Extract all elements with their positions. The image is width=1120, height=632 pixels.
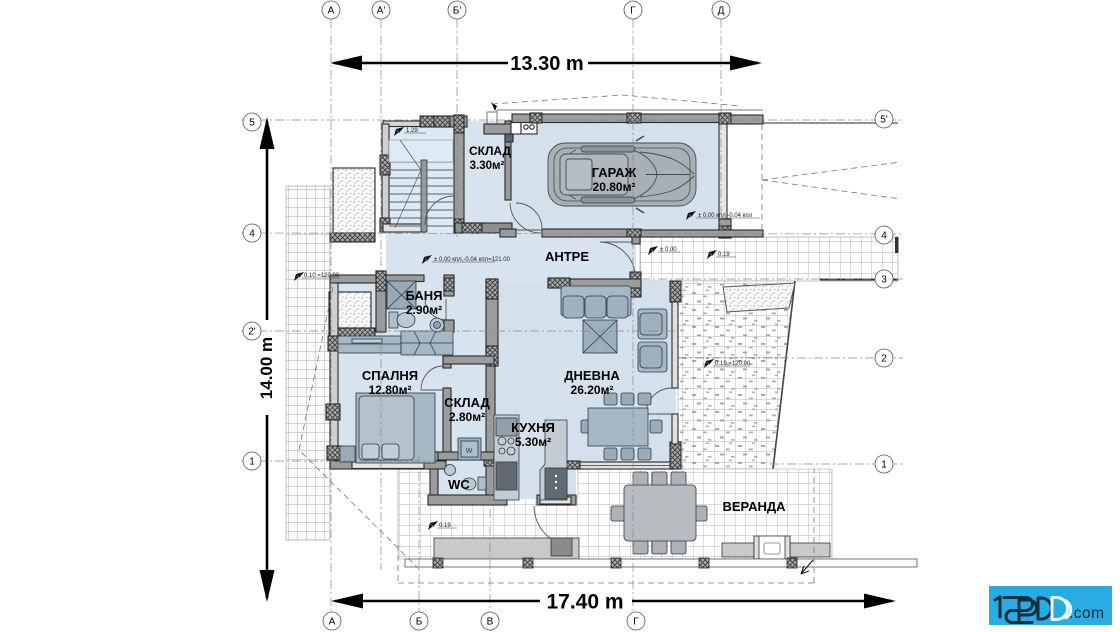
svg-text:В: В: [487, 617, 494, 628]
svg-text:2: 2: [881, 354, 887, 365]
svg-text:СКЛАД: СКЛАД: [444, 395, 490, 410]
svg-text:ВЕРАНДА: ВЕРАНДА: [722, 499, 786, 514]
svg-text:3: 3: [881, 275, 887, 286]
svg-text:12.80м²: 12.80м²: [369, 383, 412, 397]
svg-text:1: 1: [249, 457, 255, 468]
svg-text:СКЛАД: СКЛАД: [469, 144, 512, 158]
svg-text:Д: Д: [718, 6, 725, 17]
svg-text:2': 2': [248, 327, 256, 338]
svg-text:БАНЯ: БАНЯ: [406, 288, 443, 303]
svg-text:3.30м²: 3.30м²: [470, 160, 505, 172]
svg-text:СПАЛНЯ: СПАЛНЯ: [362, 368, 418, 383]
svg-text:Г: Г: [630, 6, 636, 17]
svg-text:Г: Г: [633, 617, 639, 628]
svg-text:2.80м²: 2.80м²: [449, 410, 485, 424]
svg-text:А': А': [377, 6, 386, 17]
svg-text:5': 5': [880, 115, 888, 126]
svg-text:ГАРАЖ: ГАРАЖ: [592, 165, 637, 180]
svg-text:1: 1: [881, 460, 887, 471]
svg-text:2.90м²: 2.90м²: [406, 303, 442, 317]
svg-text:4: 4: [881, 231, 887, 242]
svg-text:13.30 m: 13.30 m: [510, 53, 583, 75]
svg-text:5.30м²: 5.30м²: [515, 435, 551, 449]
svg-text:14.00 m: 14.00 m: [257, 337, 276, 399]
svg-text:АНТРЕ: АНТРЕ: [545, 249, 589, 264]
svg-text:Б': Б': [453, 6, 462, 17]
svg-text:26.20м²: 26.20м²: [571, 383, 614, 397]
svg-text:КУХНЯ: КУХНЯ: [511, 420, 555, 435]
svg-text:17.40 m: 17.40 m: [546, 591, 623, 614]
svg-text:5: 5: [249, 118, 255, 129]
svg-text:.com: .com: [1069, 605, 1105, 622]
svg-text:4: 4: [249, 229, 255, 240]
svg-text:А: А: [329, 617, 336, 628]
svg-text:W: W: [466, 448, 473, 455]
svg-text:ДНЕВНА: ДНЕВНА: [564, 368, 620, 383]
svg-text:20.80м²: 20.80м²: [593, 180, 636, 194]
svg-text:WC: WC: [448, 477, 470, 492]
svg-text:Б: Б: [416, 617, 423, 628]
svg-text:А: А: [328, 6, 335, 17]
